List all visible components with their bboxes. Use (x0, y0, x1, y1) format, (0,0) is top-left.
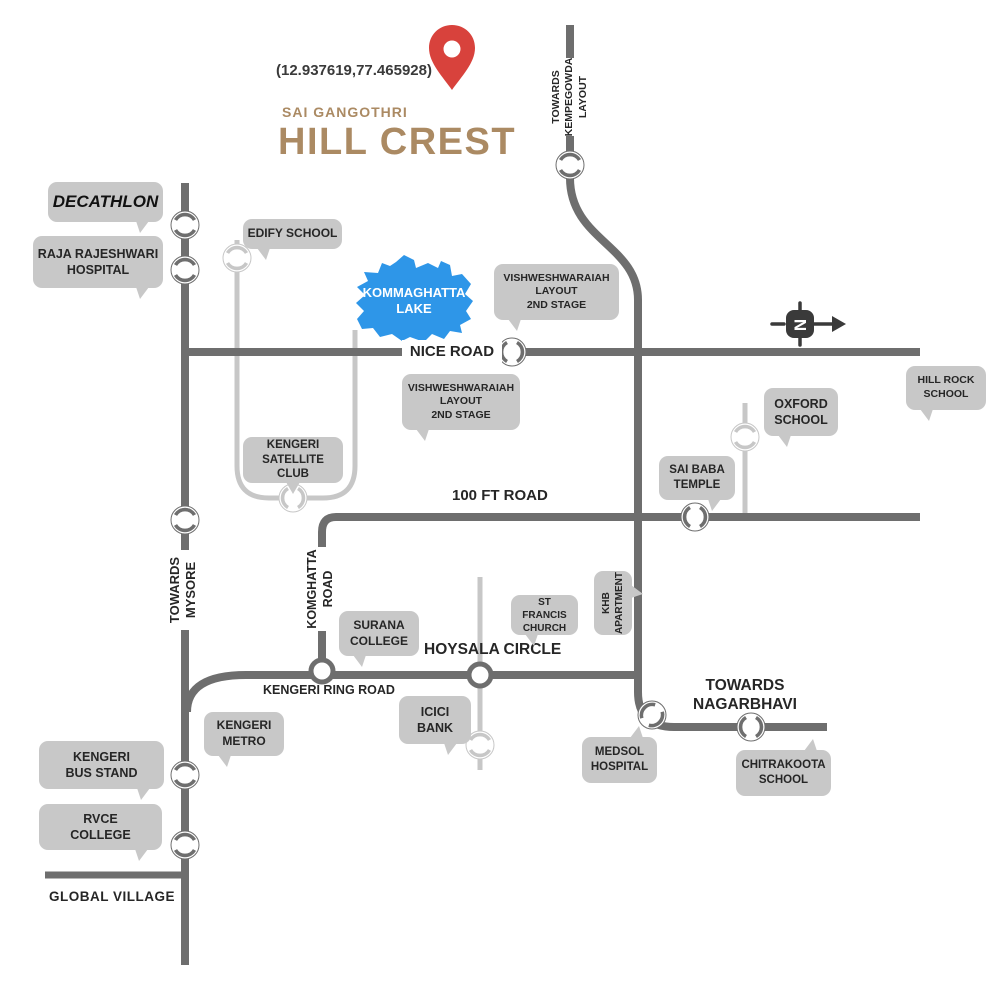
road-label-nice: NICE ROAD (402, 340, 502, 364)
road-marker (681, 503, 709, 531)
road-label-kengeri-ring: KENGERI RING ROAD (263, 683, 395, 699)
road-label-towards-nagarbhavi: TOWARDS NAGARBHAVI (670, 676, 820, 715)
road-label-towards-kempegowda: TOWARDS KEMPEGOWDA LAYOUT (547, 58, 593, 136)
location-map: N (12.937619,77.465928) SAI GANGOTHRI HI… (0, 0, 1000, 1000)
landmark-surana-college: SURANA COLLEGE (339, 611, 419, 656)
road-marker (171, 506, 199, 534)
landmark-icici-bank: ICICI BANK (399, 696, 471, 744)
landmark-st-francis-church: ST FRANCIS CHURCH (511, 595, 578, 635)
landmark-rvce-college: RVCE COLLEGE (39, 804, 162, 850)
road-label-hoysala-circle: HOYSALA CIRCLE (424, 640, 561, 659)
road-marker (171, 211, 199, 239)
landmark-vishweshwaraiah-layout-1: VISHWESHWARAIAH LAYOUT 2ND STAGE (494, 264, 619, 320)
road-marker (498, 338, 526, 366)
location-pin-icon (429, 25, 475, 90)
road-label-towards-mysore: TOWARDS MYSORE (164, 550, 202, 630)
road-marker (171, 831, 199, 859)
road-label-100ft: 100 FT ROAD (452, 487, 548, 506)
project-title: HILL CREST (278, 119, 516, 167)
landmark-chitrakoota-school: CHITRAKOOTA SCHOOL (736, 750, 831, 796)
compass-north-icon: N (772, 303, 846, 345)
landmark-kengeri-bus-stand: KENGERI BUS STAND (39, 741, 164, 789)
landmark-hill-rock-school: HILL ROCK SCHOOL (906, 366, 986, 410)
landmark-vishweshwaraiah-layout-2: VISHWESHWARAIAH LAYOUT 2ND STAGE (402, 374, 520, 430)
landmark-decathlon: DECATHLON (48, 182, 163, 222)
area-label-global-village: GLOBAL VILLAGE (49, 889, 175, 906)
landmark-kengeri-satellite-club: KENGERI SATELLITE CLUB (243, 437, 343, 483)
road-marker (731, 423, 759, 451)
landmark-khb-apartment: KHB APARTMENT (594, 571, 632, 635)
landmark-kengeri-metro: KENGERI METRO (204, 712, 284, 756)
road-marker (223, 244, 251, 272)
landmark-medsol-hospital: MEDSOL HOSPITAL (582, 737, 657, 783)
road-marker (171, 256, 199, 284)
road-label-komghatta: KOMGHATTA ROAD (304, 547, 338, 631)
road-marker (556, 151, 584, 179)
road-marker (171, 761, 199, 789)
landmark-edify-school: EDIFY SCHOOL (243, 219, 342, 249)
compass-letter: N (791, 319, 810, 331)
landmark-raja-rajeshwari-hospital: RAJA RAJESHWARI HOSPITAL (33, 236, 163, 288)
pin-coordinates: (12.937619,77.465928) (276, 62, 432, 81)
junction-hoysala-circle (469, 664, 491, 686)
landmark-kommaghatta-lake: KOMMAGHATTA LAKE (360, 285, 468, 318)
landmark-oxford-school: OXFORD SCHOOL (764, 388, 838, 436)
road-marker (737, 713, 765, 741)
landmark-sai-baba-temple: SAI BABA TEMPLE (659, 456, 735, 500)
junction-komghatta (311, 660, 333, 682)
